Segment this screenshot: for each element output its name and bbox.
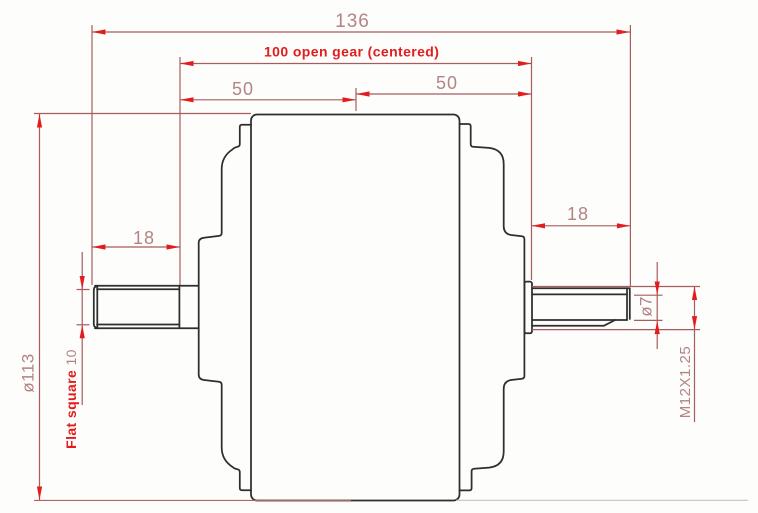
svg-text:100 open gear (centered): 100 open gear (centered) <box>264 44 439 60</box>
svg-text:136: 136 <box>335 11 370 32</box>
svg-text:18: 18 <box>133 228 155 248</box>
svg-text:ø7: ø7 <box>637 296 656 316</box>
svg-text:18: 18 <box>567 204 589 224</box>
svg-text:ø113: ø113 <box>19 353 38 393</box>
svg-text:M12X1.25: M12X1.25 <box>677 346 694 418</box>
svg-text:Flat square 10: Flat square 10 <box>63 349 79 449</box>
svg-text:50: 50 <box>232 79 254 99</box>
svg-text:50: 50 <box>436 73 458 93</box>
